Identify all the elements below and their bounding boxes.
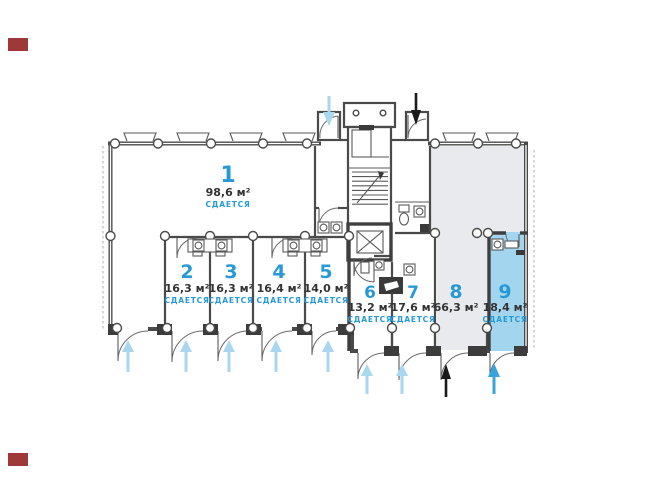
svg-text:СДАЕТСЯ: СДАЕТСЯ bbox=[208, 296, 253, 305]
svg-text:СДАЕТСЯ: СДАЕТСЯ bbox=[482, 315, 527, 324]
room-4-label[interactable]: 4 16,4 м² СДАЕТСЯ bbox=[256, 261, 301, 305]
svg-text:СДАЕТСЯ: СДАЕТСЯ bbox=[256, 296, 301, 305]
svg-text:16,3 м²: 16,3 м² bbox=[165, 282, 210, 295]
svg-text:16,3 м²: 16,3 м² bbox=[209, 282, 254, 295]
svg-text:5: 5 bbox=[319, 261, 332, 283]
svg-text:17,6 м²: 17,6 м² bbox=[391, 301, 436, 314]
room-1-label[interactable]: 1 98,6 м² СДАЕТСЯ bbox=[205, 163, 250, 209]
svg-text:16,4 м²: 16,4 м² bbox=[257, 282, 302, 295]
svg-text:9: 9 bbox=[498, 281, 511, 303]
arrow-up-black-bottom bbox=[441, 364, 451, 397]
floor-plan-canvas: 1 98,6 м² СДАЕТСЯ 2 16,3 м² СДАЕТСЯ 3 16… bbox=[0, 0, 653, 489]
stairs-icon bbox=[352, 171, 388, 204]
svg-text:13,2 м²: 13,2 м² bbox=[348, 301, 393, 314]
room-3-label[interactable]: 3 16,3 м² СДАЕТСЯ bbox=[208, 261, 253, 305]
svg-text:2: 2 bbox=[180, 261, 193, 283]
svg-text:98,6 м²: 98,6 м² bbox=[206, 186, 251, 199]
svg-text:66,3 м²: 66,3 м² bbox=[434, 301, 479, 314]
svg-text:1: 1 bbox=[220, 163, 235, 188]
svg-text:СДАЕТСЯ: СДАЕТСЯ bbox=[347, 315, 392, 324]
room-5-label[interactable]: 5 14,0 м² СДАЕТСЯ bbox=[303, 261, 348, 305]
room-2-label[interactable]: 2 16,3 м² СДАЕТСЯ bbox=[164, 261, 209, 305]
svg-text:6: 6 bbox=[364, 283, 376, 303]
svg-text:4: 4 bbox=[272, 261, 285, 283]
svg-text:СДАЕТСЯ: СДАЕТСЯ bbox=[303, 296, 348, 305]
svg-text:СДАЕТСЯ: СДАЕТСЯ bbox=[205, 200, 250, 209]
svg-text:8: 8 bbox=[449, 281, 462, 303]
svg-text:18,4 м²: 18,4 м² bbox=[483, 301, 528, 314]
svg-text:СДАЕТСЯ: СДАЕТСЯ bbox=[164, 296, 209, 305]
svg-text:14,0 м²: 14,0 м² bbox=[304, 282, 349, 295]
svg-text:СДАЕТСЯ: СДАЕТСЯ bbox=[390, 315, 435, 324]
floor-plan: 1 98,6 м² СДАЕТСЯ 2 16,3 м² СДАЕТСЯ 3 16… bbox=[0, 0, 653, 489]
elevator-icon bbox=[348, 224, 391, 260]
svg-text:7: 7 bbox=[407, 283, 419, 303]
svg-text:3: 3 bbox=[224, 261, 237, 283]
